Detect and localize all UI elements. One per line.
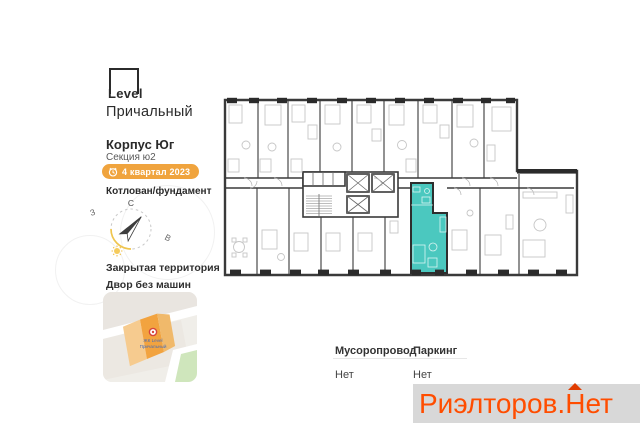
watermark-part3: ет: [585, 388, 612, 419]
feature-closed-territory: Закрытая территория: [106, 262, 220, 274]
detail-value-parking: Нет: [413, 369, 432, 381]
compass-north-label: С: [128, 198, 134, 208]
rieltorov-net-watermark: Риэлторов.Нет: [413, 384, 640, 423]
compass-needle: [120, 213, 146, 241]
details-divider: [333, 358, 467, 359]
feature-no-cars: Двор без машин: [106, 279, 191, 291]
floor-plan: [222, 95, 580, 280]
location-minimap[interactable]: ЖК Level Причальный: [103, 292, 197, 382]
section-label: Секция ю2: [106, 152, 156, 163]
detail-value-garbage-chute: Нет: [335, 369, 354, 381]
building-title: Корпус Юг: [106, 137, 174, 152]
completion-badge: 4 квартал 2023: [102, 164, 199, 179]
clock-icon: [108, 167, 118, 177]
metro-icon-dot: [152, 331, 154, 333]
watermark-house-letter: Н: [565, 390, 585, 418]
construction-stage: Котлован/фундамент: [106, 186, 211, 197]
watermark-part2: Н: [565, 388, 585, 419]
watermark-part1: Риэлторов.: [419, 388, 565, 419]
minimap-canvas: ЖК Level Причальный: [103, 292, 197, 382]
house-roof-icon: [568, 383, 582, 390]
rieltorov-net-text: Риэлторов.Нет: [419, 390, 613, 418]
project-name: Причальный: [106, 104, 193, 120]
detail-label-garbage-chute: Мусоропровод: [335, 345, 417, 357]
compass-west-label: З: [89, 207, 97, 218]
minimap-label-line2: Причальный: [140, 343, 167, 349]
minimap-label-line1: ЖК Level: [143, 338, 162, 343]
compass-east-label: В: [163, 232, 173, 244]
completion-badge-label: 4 квартал 2023: [122, 167, 190, 177]
detail-label-parking: Паркинг: [413, 345, 457, 357]
level-logo-brand: Level: [108, 86, 143, 101]
compass: С З В: [85, 197, 177, 259]
